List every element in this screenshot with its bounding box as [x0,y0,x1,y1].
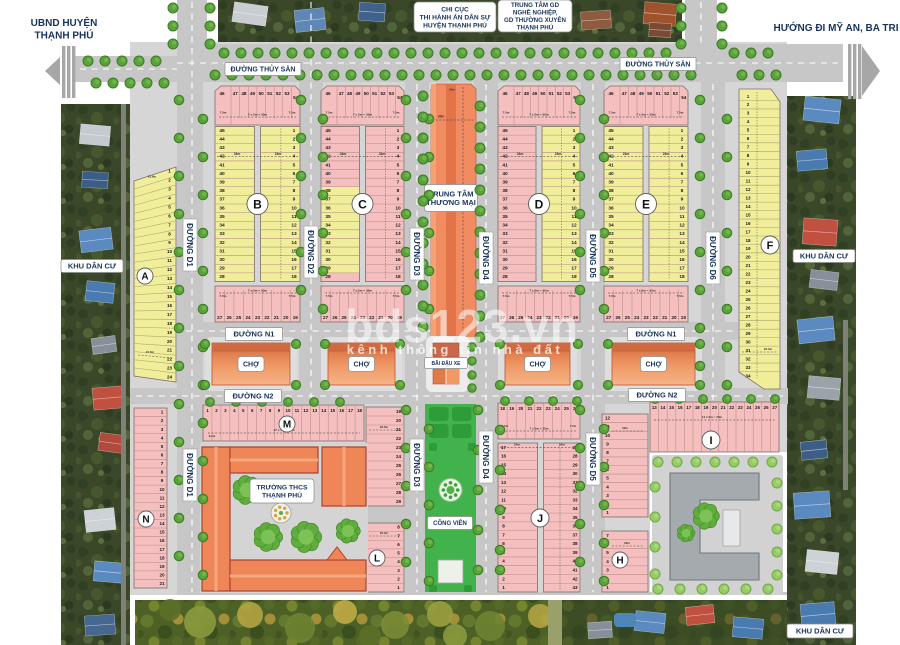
svg-text:CHỢ: CHỢ [353,362,369,369]
svg-text:20: 20 [745,255,751,260]
svg-text:17: 17 [745,229,751,234]
svg-text:28: 28 [745,322,751,327]
svg-text:38: 38 [219,188,225,194]
svg-text:1: 1 [502,585,505,590]
svg-text:50: 50 [647,91,653,96]
svg-text:43: 43 [325,145,331,151]
svg-text:31: 31 [219,248,225,254]
svg-text:ĐƯỜNG D1: ĐƯỜNG D1 [185,453,194,497]
svg-text:GD THƯỜNG XUYÊN: GD THƯỜNG XUYÊN [504,16,567,24]
svg-text:17: 17 [679,266,685,272]
svg-text:KHU DÂN CƯ: KHU DÂN CƯ [800,252,849,261]
svg-text:13: 13 [291,231,297,237]
svg-text:26: 26 [332,315,338,320]
svg-text:ĐƯỜNG N1: ĐƯỜNG N1 [636,330,677,339]
svg-text:8: 8 [397,188,400,194]
svg-text:2: 2 [161,418,164,423]
svg-text:30m: 30m [438,115,445,119]
svg-text:33: 33 [572,497,578,502]
svg-text:23: 23 [745,280,751,285]
svg-text:5: 5 [397,162,400,168]
svg-text:7 x 5m = 35m: 7 x 5m = 35m [248,289,268,293]
svg-text:43: 43 [608,145,614,151]
svg-text:1: 1 [397,128,400,134]
svg-text:33: 33 [219,231,225,237]
svg-text:19: 19 [396,409,402,414]
svg-text:ĐƯỜNG D3: ĐƯỜNG D3 [412,443,421,487]
svg-text:4: 4 [747,119,750,124]
svg-text:N: N [142,515,149,526]
svg-text:10: 10 [167,249,173,254]
svg-text:CHỢ: CHỢ [645,362,661,369]
svg-text:15: 15 [395,248,401,254]
svg-text:7: 7 [161,461,164,466]
svg-text:53: 53 [673,91,679,96]
svg-text:ĐƯỜNG D4: ĐƯỜNG D4 [481,435,490,479]
svg-text:24: 24 [396,454,402,459]
svg-text:37: 37 [219,197,225,203]
svg-text:12: 12 [167,267,173,272]
svg-text:36: 36 [325,205,331,211]
svg-text:7.5m: 7.5m [503,294,510,298]
svg-text:9: 9 [606,441,609,446]
svg-text:3: 3 [168,186,171,191]
svg-text:19: 19 [509,406,514,411]
svg-text:21: 21 [527,406,532,411]
svg-text:9: 9 [293,197,296,203]
svg-text:HUYỆN THẠNH PHÚ: HUYỆN THẠNH PHÚ [423,20,487,29]
svg-text:51: 51 [549,91,555,96]
svg-text:D: D [535,197,544,211]
svg-text:41: 41 [572,567,578,572]
svg-text:28: 28 [572,454,578,459]
svg-text:26: 26 [227,315,233,320]
svg-text:3: 3 [293,145,296,151]
svg-text:23: 23 [167,366,173,371]
svg-text:30: 30 [219,257,225,263]
svg-text:21: 21 [662,315,668,320]
svg-text:CÔNG VIÊN: CÔNG VIÊN [433,519,467,527]
svg-text:27: 27 [217,315,223,320]
svg-text:22: 22 [264,315,270,320]
svg-text:7.5m: 7.5m [609,111,616,115]
svg-text:7 x 5m = 35m: 7 x 5m = 35m [636,289,656,293]
svg-text:9: 9 [681,197,684,203]
svg-text:7.5m: 7.5m [220,294,227,298]
svg-text:48: 48 [241,91,247,96]
svg-text:40: 40 [608,171,614,177]
svg-text:6: 6 [397,171,400,177]
svg-text:7.5m: 7.5m [289,111,296,115]
svg-text:E: E [642,197,650,211]
svg-text:44: 44 [608,136,614,142]
svg-text:1: 1 [293,128,296,134]
svg-text:48: 48 [630,91,636,96]
svg-text:11: 11 [679,214,684,220]
svg-text:7 x 5m = 35m: 7 x 5m = 35m [529,289,549,293]
svg-text:19: 19 [293,315,299,320]
svg-text:ĐƯỜNG D2: ĐƯỜNG D2 [306,230,315,274]
svg-text:34: 34 [325,223,331,229]
svg-text:18: 18 [291,274,297,280]
svg-text:17: 17 [348,408,353,413]
svg-text:37: 37 [502,197,508,203]
svg-text:31: 31 [325,248,331,254]
svg-text:NGHỀ NGHIỆP,: NGHỀ NGHIỆP, [513,8,558,16]
svg-text:19: 19 [703,405,708,410]
svg-text:32: 32 [608,240,614,246]
svg-text:13: 13 [745,195,751,200]
svg-text:13: 13 [652,405,657,410]
svg-text:26: 26 [764,405,769,410]
svg-text:26m: 26m [622,426,628,430]
svg-text:2: 2 [681,136,684,142]
svg-text:46: 46 [502,91,508,96]
svg-text:18: 18 [695,405,700,410]
svg-text:KHU DÂN CƯ: KHU DÂN CƯ [68,262,117,271]
svg-text:29: 29 [219,266,225,272]
svg-text:33: 33 [502,231,508,237]
svg-text:22: 22 [729,405,734,410]
svg-text:24m: 24m [275,152,282,156]
svg-text:7 x 5m = 35m: 7 x 5m = 35m [353,113,373,117]
svg-text:16: 16 [159,538,165,543]
svg-text:10: 10 [291,205,297,211]
svg-text:21: 21 [721,405,726,410]
svg-text:50: 50 [540,91,546,96]
svg-text:23: 23 [738,405,743,410]
svg-text:L: L [374,554,380,565]
svg-text:26: 26 [745,306,751,311]
svg-text:51: 51 [656,91,662,96]
svg-text:27: 27 [606,315,612,320]
svg-text:51: 51 [372,91,378,96]
svg-text:35: 35 [219,214,225,220]
svg-text:47: 47 [339,91,345,96]
svg-text:7: 7 [502,532,505,537]
svg-text:9.2m: 9.2m [209,434,216,438]
svg-text:27: 27 [772,405,777,410]
svg-text:7 x 5m = 35m: 7 x 5m = 35m [529,113,549,117]
svg-text:THƯƠNG MẠI: THƯƠNG MẠI [426,198,476,207]
svg-text:9: 9 [397,197,400,203]
svg-text:16: 16 [291,257,297,263]
svg-text:53: 53 [284,91,290,96]
svg-text:5: 5 [161,444,164,449]
svg-text:ĐƯỜNG N2: ĐƯỜNG N2 [233,392,274,401]
svg-text:ĐƯỜNG THỦY SẢN: ĐƯỜNG THỦY SẢN [231,65,296,74]
svg-text:4: 4 [502,559,505,564]
svg-text:3: 3 [397,568,400,573]
svg-text:11: 11 [160,495,165,500]
svg-text:20: 20 [159,573,165,578]
svg-text:15: 15 [745,212,751,217]
svg-text:I: I [709,435,712,447]
svg-text:48: 48 [347,91,353,96]
svg-text:8: 8 [606,450,609,455]
svg-text:7 x 5m = 35m: 7 x 5m = 35m [530,427,549,431]
svg-text:22: 22 [653,315,659,320]
svg-text:16: 16 [395,257,401,263]
svg-text:27: 27 [323,315,329,320]
svg-text:49: 49 [250,91,256,96]
svg-text:5: 5 [747,128,750,133]
svg-text:53: 53 [389,91,395,96]
svg-text:40: 40 [219,171,225,177]
svg-text:2: 2 [397,136,400,142]
svg-text:50: 50 [364,91,370,96]
svg-text:11: 11 [295,408,300,413]
svg-text:29: 29 [745,331,751,336]
svg-text:THẠNH PHÚ: THẠNH PHÚ [35,29,94,42]
svg-text:1: 1 [606,510,609,515]
svg-text:1: 1 [397,585,400,590]
svg-text:44: 44 [325,136,331,142]
svg-text:7.5m: 7.5m [289,294,296,298]
svg-text:2: 2 [397,576,400,581]
svg-text:15: 15 [679,248,685,254]
svg-text:9: 9 [161,478,164,483]
svg-text:7: 7 [168,222,171,227]
svg-text:ĐƯỜNG THỦY SẢN: ĐƯỜNG THỦY SẢN [626,60,691,69]
svg-text:38: 38 [608,188,614,194]
svg-text:41: 41 [325,162,331,168]
svg-text:1: 1 [161,410,164,415]
svg-text:CHỢ: CHỢ [529,362,545,369]
svg-text:7.5m: 7.5m [503,111,510,115]
svg-text:3: 3 [747,111,750,116]
svg-text:THI HÀNH ÁN DÂN SỰ: THI HÀNH ÁN DÂN SỰ [420,12,491,21]
svg-text:39: 39 [325,180,331,186]
svg-text:10: 10 [395,205,401,211]
svg-text:16: 16 [571,257,577,263]
svg-text:45: 45 [325,128,331,134]
svg-text:8: 8 [573,188,576,194]
svg-text:14: 14 [159,521,165,526]
svg-text:13: 13 [159,513,165,518]
svg-text:F: F [767,240,774,252]
svg-text:5: 5 [397,551,400,556]
svg-text:27: 27 [396,481,402,486]
svg-text:45: 45 [219,128,225,134]
svg-text:22: 22 [537,406,542,411]
svg-text:3: 3 [606,493,609,498]
svg-text:50: 50 [259,91,265,96]
svg-text:A: A [141,272,148,283]
svg-text:53: 53 [565,91,571,96]
svg-text:7 x 5m = 35m: 7 x 5m = 35m [636,113,656,117]
svg-text:17: 17 [291,266,297,272]
svg-text:14: 14 [660,405,665,410]
svg-text:2: 2 [747,102,750,107]
svg-text:24: 24 [745,289,751,294]
svg-text:52: 52 [380,91,386,96]
svg-text:ĐƯỜNG D5: ĐƯỜNG D5 [588,234,597,278]
svg-text:22.5m: 22.5m [380,425,389,429]
svg-text:7.5m: 7.5m [326,111,333,115]
svg-text:26: 26 [615,315,621,320]
svg-text:33: 33 [745,365,751,370]
svg-text:37: 37 [608,197,614,203]
svg-text:24m: 24m [340,152,347,156]
svg-text:21: 21 [167,348,173,353]
svg-text:kênh thông tin nhà đất: kênh thông tin nhà đất [347,342,563,357]
svg-text:30: 30 [325,257,331,263]
svg-text:26: 26 [396,472,402,477]
svg-text:24: 24 [245,315,251,320]
svg-text:24m: 24m [517,152,524,156]
svg-text:24m: 24m [555,152,562,156]
svg-text:46: 46 [608,91,614,96]
svg-text:18: 18 [395,274,401,280]
svg-text:5: 5 [606,476,609,481]
svg-text:28: 28 [396,490,402,495]
svg-text:30: 30 [572,471,578,476]
svg-text:39: 39 [219,180,225,186]
svg-text:23: 23 [546,406,551,411]
svg-text:20: 20 [283,315,289,320]
svg-text:9: 9 [573,197,576,203]
svg-text:4: 4 [168,195,171,200]
svg-text:ĐƯỜNG D6: ĐƯỜNG D6 [708,236,717,280]
svg-text:24m: 24m [559,443,565,447]
svg-text:29: 29 [572,462,578,467]
svg-text:21: 21 [745,263,751,268]
svg-text:23: 23 [396,445,402,450]
svg-text:35: 35 [502,214,508,220]
svg-text:5: 5 [168,204,171,209]
svg-text:32: 32 [502,240,508,246]
svg-text:32: 32 [325,240,331,246]
svg-text:7: 7 [573,180,576,186]
svg-text:43: 43 [502,145,508,151]
svg-text:20: 20 [712,405,717,410]
svg-text:11: 11 [395,214,400,220]
svg-text:7.5m: 7.5m [570,424,577,428]
svg-text:7.5m: 7.5m [677,294,684,298]
svg-text:29: 29 [396,499,402,504]
svg-text:18: 18 [500,406,505,411]
svg-text:18: 18 [167,321,173,326]
svg-text:12: 12 [291,223,297,229]
svg-text:25: 25 [236,315,242,320]
svg-text:22.3m: 22.3m [380,531,389,535]
svg-text:17: 17 [159,547,165,552]
svg-text:40: 40 [502,171,508,177]
svg-text:12: 12 [679,223,685,229]
svg-text:8: 8 [502,524,505,529]
svg-text:19: 19 [745,246,751,251]
svg-text:38: 38 [502,188,508,194]
svg-text:29: 29 [502,266,508,272]
svg-text:UBND HUYỆN: UBND HUYỆN [31,16,98,29]
svg-text:TRUNG TÂM: TRUNG TÂM [429,189,474,198]
svg-text:47: 47 [516,91,522,96]
svg-text:6: 6 [161,453,164,458]
svg-text:25: 25 [755,405,760,410]
svg-text:4: 4 [606,484,609,489]
svg-text:HƯỚNG ĐI MỸ AN, BA TRI: HƯỚNG ĐI MỸ AN, BA TRI [774,21,899,34]
svg-text:37: 37 [572,532,578,537]
svg-text:1: 1 [681,128,684,134]
svg-text:M: M [283,420,291,431]
svg-text:44: 44 [502,136,508,142]
svg-text:23: 23 [255,315,261,320]
svg-text:13: 13 [395,231,401,237]
svg-text:16: 16 [501,454,507,459]
svg-text:35: 35 [572,515,578,520]
svg-text:24m: 24m [379,152,386,156]
svg-text:1: 1 [747,94,750,99]
svg-text:44: 44 [219,136,225,142]
svg-text:21: 21 [159,581,165,586]
svg-text:THẠNH PHÚ: THẠNH PHÚ [262,491,302,500]
svg-text:8: 8 [397,525,400,530]
svg-text:48: 48 [524,91,530,96]
svg-text:39: 39 [502,180,508,186]
svg-text:6: 6 [397,542,400,547]
svg-text:36: 36 [219,205,225,211]
svg-text:20: 20 [671,315,677,320]
svg-text:H: H [616,556,623,567]
svg-text:J: J [537,513,543,525]
svg-text:7.5m: 7.5m [569,111,576,115]
svg-text:46: 46 [219,91,225,96]
svg-text:28: 28 [502,274,508,280]
svg-text:ĐƯỜNG D1: ĐƯỜNG D1 [185,223,194,267]
svg-text:5: 5 [681,162,684,168]
svg-text:1: 1 [606,585,609,590]
svg-text:49: 49 [355,91,361,96]
svg-text:8: 8 [161,470,164,475]
svg-text:32: 32 [745,356,751,361]
svg-text:7 x 5m = 35m: 7 x 5m = 35m [248,113,268,117]
svg-text:7.5m: 7.5m [609,294,616,298]
svg-text:31: 31 [502,248,508,254]
svg-text:6: 6 [747,136,750,141]
svg-text:18: 18 [571,274,577,280]
svg-text:12: 12 [501,489,507,494]
svg-text:ĐƯỜNG N1: ĐƯỜNG N1 [234,330,275,339]
svg-text:11: 11 [167,258,172,263]
svg-text:1: 1 [573,128,576,134]
svg-text:7: 7 [681,180,684,186]
svg-text:25: 25 [625,315,631,320]
svg-text:2: 2 [502,576,505,581]
svg-text:26m: 26m [624,541,630,545]
svg-text:51: 51 [267,91,273,96]
svg-text:16: 16 [678,405,683,410]
svg-text:12: 12 [745,187,751,192]
svg-text:5: 5 [606,550,609,555]
svg-text:TRƯỜNG THCS: TRƯỜNG THCS [256,482,308,491]
svg-text:8: 8 [168,231,171,236]
svg-text:BÃI ĐẬU XE: BÃI ĐẬU XE [432,360,462,367]
svg-text:3: 3 [161,427,164,432]
svg-text:13: 13 [679,231,685,237]
svg-text:24m: 24m [234,152,241,156]
svg-text:45: 45 [502,128,508,134]
svg-text:5: 5 [293,162,296,168]
svg-text:39: 39 [572,550,578,555]
svg-text:18: 18 [745,238,751,243]
svg-text:35: 35 [608,214,614,220]
svg-text:ĐƯỜNG D4: ĐƯỜNG D4 [481,236,490,280]
svg-text:24: 24 [167,375,173,380]
svg-text:10: 10 [286,408,291,413]
svg-text:ĐƯỜNG N2: ĐƯỜNG N2 [637,391,678,400]
svg-text:16: 16 [339,408,344,413]
